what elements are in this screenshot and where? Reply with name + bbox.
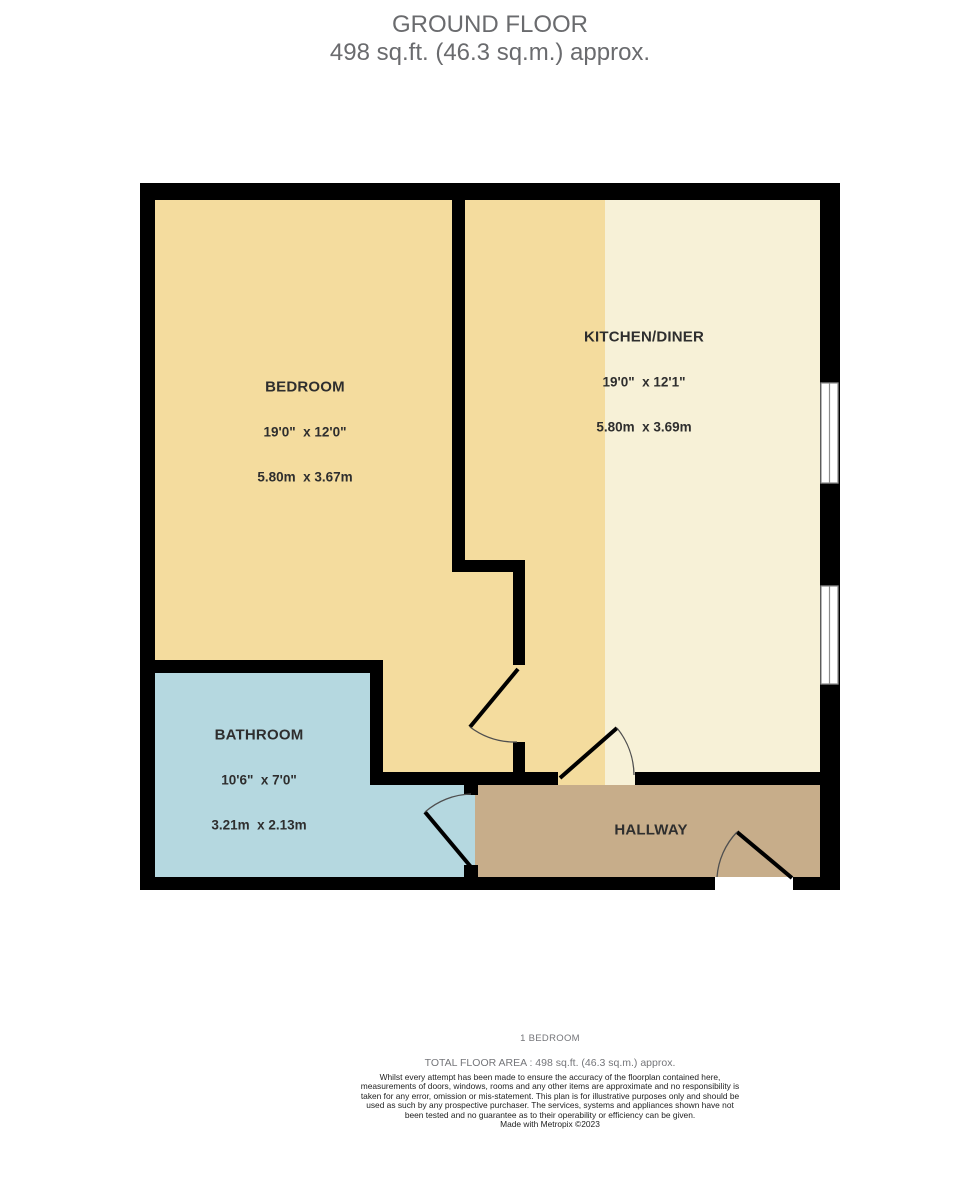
bathroom-wall-top bbox=[153, 660, 383, 673]
kitchen-dimensions-imperial: 19'0" x 12'1" bbox=[584, 375, 704, 390]
outer-wall-top bbox=[140, 183, 840, 200]
bedroom-kitchen-wall-lower bbox=[513, 572, 525, 665]
bathroom-door-jamb-top bbox=[464, 783, 478, 795]
bathroom-dimensions-imperial: 10'6" x 7'0" bbox=[211, 773, 306, 788]
kitchen-dimensions-metric: 5.80m x 3.69m bbox=[584, 420, 704, 435]
kitchen-label: KITCHEN/DINER 19'0" x 12'1" 5.80m x 3.69… bbox=[584, 300, 704, 465]
disclaimer-text: Whilst every attempt has been made to en… bbox=[358, 1073, 742, 1120]
bathroom-floor-extension bbox=[370, 783, 475, 890]
bathroom-name: BATHROOM bbox=[211, 728, 306, 743]
floor-title: GROUND FLOOR bbox=[0, 11, 980, 39]
bathroom-wall-right bbox=[370, 660, 383, 783]
bedroom-kitchen-wall-upper bbox=[452, 200, 465, 566]
bedroom-dimensions-imperial: 19'0" x 12'0" bbox=[257, 425, 352, 440]
bedroom-label: BEDROOM 19'0" x 12'0" 5.80m x 3.67m bbox=[257, 350, 352, 515]
outer-wall-bottom-right bbox=[793, 877, 840, 890]
floor-area-subtitle: 498 sq.ft. (46.3 sq.m.) approx. bbox=[0, 39, 980, 67]
bedroom-floor-extension bbox=[383, 560, 520, 785]
hallway-label: HALLWAY bbox=[614, 793, 687, 868]
footer: 1 BEDROOM TOTAL FLOOR AREA : 498 sq.ft. … bbox=[170, 1033, 930, 1129]
bathroom-dimensions-metric: 3.21m x 2.13m bbox=[211, 818, 306, 833]
outer-wall-bottom-left bbox=[140, 877, 715, 890]
floor-plan: BEDROOM 19'0" x 12'0" 5.80m x 3.67m KITC… bbox=[140, 183, 840, 890]
title-block: GROUND FLOOR 498 sq.ft. (46.3 sq.m.) app… bbox=[0, 11, 980, 67]
kitchen-name: KITCHEN/DINER bbox=[584, 330, 704, 345]
hallway-name: HALLWAY bbox=[614, 823, 687, 838]
total-floor-area: TOTAL FLOOR AREA : 498 sq.ft. (46.3 sq.m… bbox=[170, 1057, 930, 1069]
bedroom-dimensions-metric: 5.80m x 3.67m bbox=[257, 470, 352, 485]
floorplan-page: GROUND FLOOR 498 sq.ft. (46.3 sq.m.) app… bbox=[0, 0, 980, 1178]
bathroom-label: BATHROOM 10'6" x 7'0" 3.21m x 2.13m bbox=[211, 698, 306, 863]
hallway-wall-right bbox=[635, 772, 828, 785]
credit-line: Made with Metropix ©2023 bbox=[170, 1120, 930, 1129]
bedroom-name: BEDROOM bbox=[257, 380, 352, 395]
bedroom-kitchen-wall-step bbox=[452, 560, 525, 572]
bedroom-door-jamb bbox=[513, 742, 525, 772]
outer-wall-left bbox=[140, 183, 155, 890]
bedroom-count: 1 BEDROOM bbox=[170, 1033, 930, 1044]
